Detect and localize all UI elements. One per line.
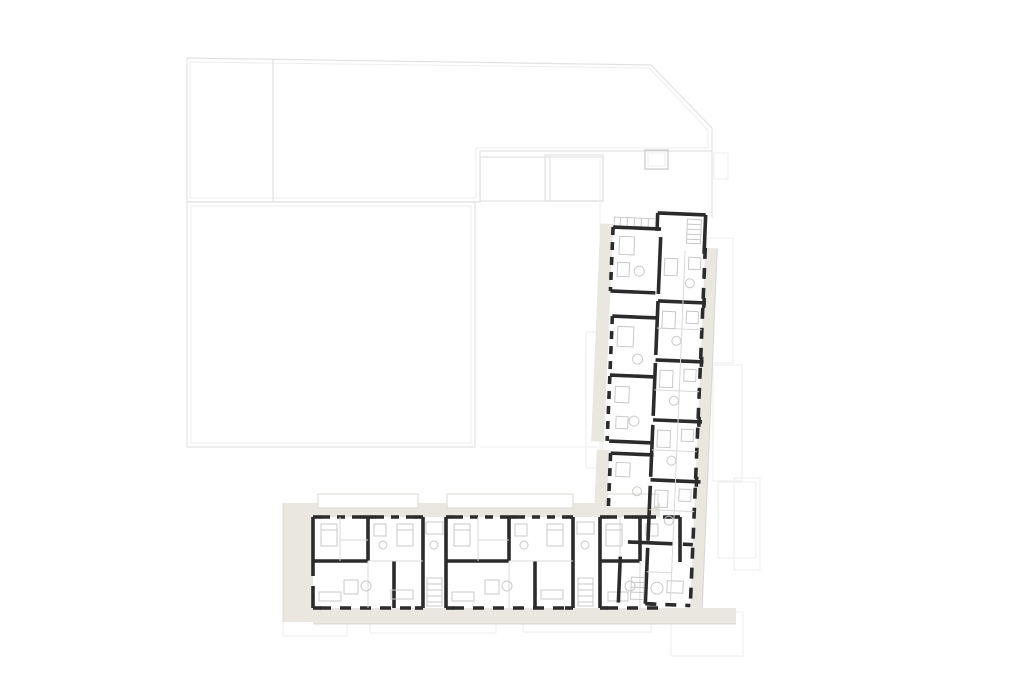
south-wing-entry-2 xyxy=(577,522,594,606)
stair-run xyxy=(631,577,645,600)
parcel-upper-inner-line xyxy=(190,62,708,198)
context-block-b xyxy=(545,155,603,201)
south-wing-unit-3 xyxy=(600,517,680,608)
context-east-rect-1 xyxy=(714,153,728,179)
floor-plan-drawing xyxy=(0,0,1024,683)
context-east-rect-4 xyxy=(718,482,756,558)
context-east-rect-3 xyxy=(713,365,742,481)
parcel-upper-outline xyxy=(187,58,712,202)
balcony-box-unit1 xyxy=(318,494,418,508)
south-wing-unit-1 xyxy=(313,517,423,608)
parcel-lower-inner-line xyxy=(191,206,471,443)
balcony-box-unit2 xyxy=(447,494,573,508)
parcel-lower-outline xyxy=(187,202,475,447)
entry-fixture xyxy=(426,522,443,534)
east-wing xyxy=(584,211,718,609)
west-room-cluster-1 xyxy=(610,227,661,293)
south-wing-unit-2 xyxy=(446,517,573,608)
entry-fixture xyxy=(577,522,594,534)
west-room-cluster-2 xyxy=(607,316,658,443)
south-bottom-balcony-strip xyxy=(313,608,736,624)
entry-fixture-round xyxy=(581,541,589,549)
floor-plan-page xyxy=(0,0,1024,683)
site-context-outlines xyxy=(187,58,760,656)
context-block-a xyxy=(480,157,603,201)
roof-notch-inner xyxy=(648,153,665,166)
entry-fixture-round xyxy=(430,541,438,549)
west-terrace xyxy=(283,503,313,622)
south-wing-entry-1 xyxy=(426,522,443,606)
